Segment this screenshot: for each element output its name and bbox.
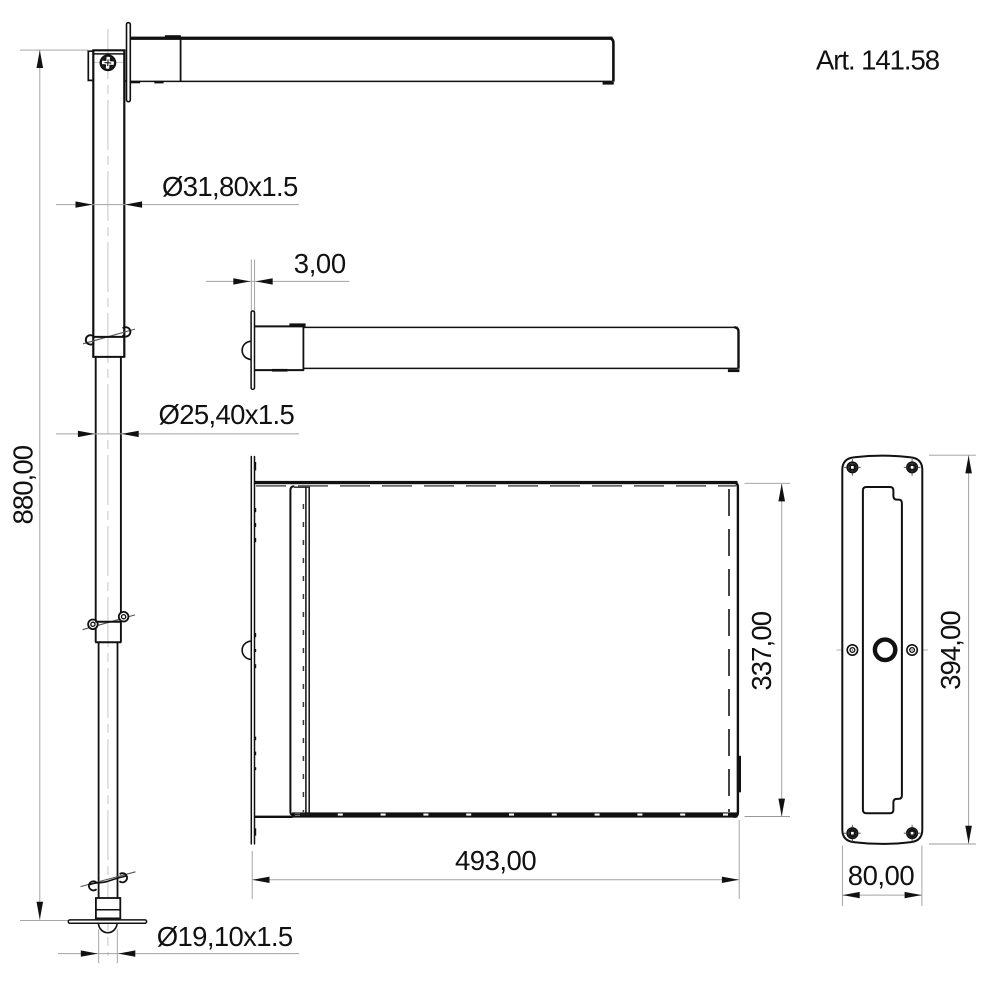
svg-text:3,00: 3,00 xyxy=(294,248,346,279)
svg-text:80,00: 80,00 xyxy=(848,860,915,891)
svg-text:337,00: 337,00 xyxy=(746,611,777,690)
svg-text:Ø25,40x1.5: Ø25,40x1.5 xyxy=(159,399,295,430)
svg-text:880,00: 880,00 xyxy=(7,445,38,524)
svg-text:Ø31,80x1.5: Ø31,80x1.5 xyxy=(162,171,298,202)
svg-text:394,00: 394,00 xyxy=(935,611,966,690)
svg-text:493,00: 493,00 xyxy=(455,845,536,876)
svg-text:Art. 141.58: Art. 141.58 xyxy=(816,44,940,75)
svg-text:Ø19,10x1.5: Ø19,10x1.5 xyxy=(157,921,293,952)
